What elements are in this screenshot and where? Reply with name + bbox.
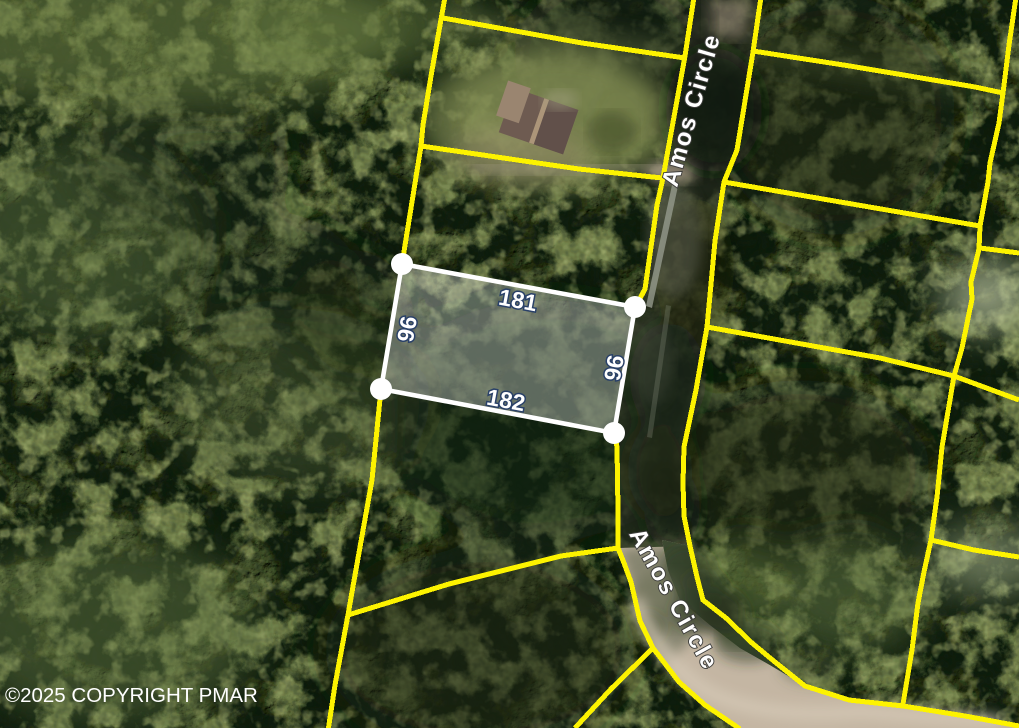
svg-text:96: 96 xyxy=(392,314,422,344)
svg-text:96: 96 xyxy=(599,353,629,383)
svg-text:©2025 COPYRIGHT PMAR: ©2025 COPYRIGHT PMAR xyxy=(5,684,258,707)
